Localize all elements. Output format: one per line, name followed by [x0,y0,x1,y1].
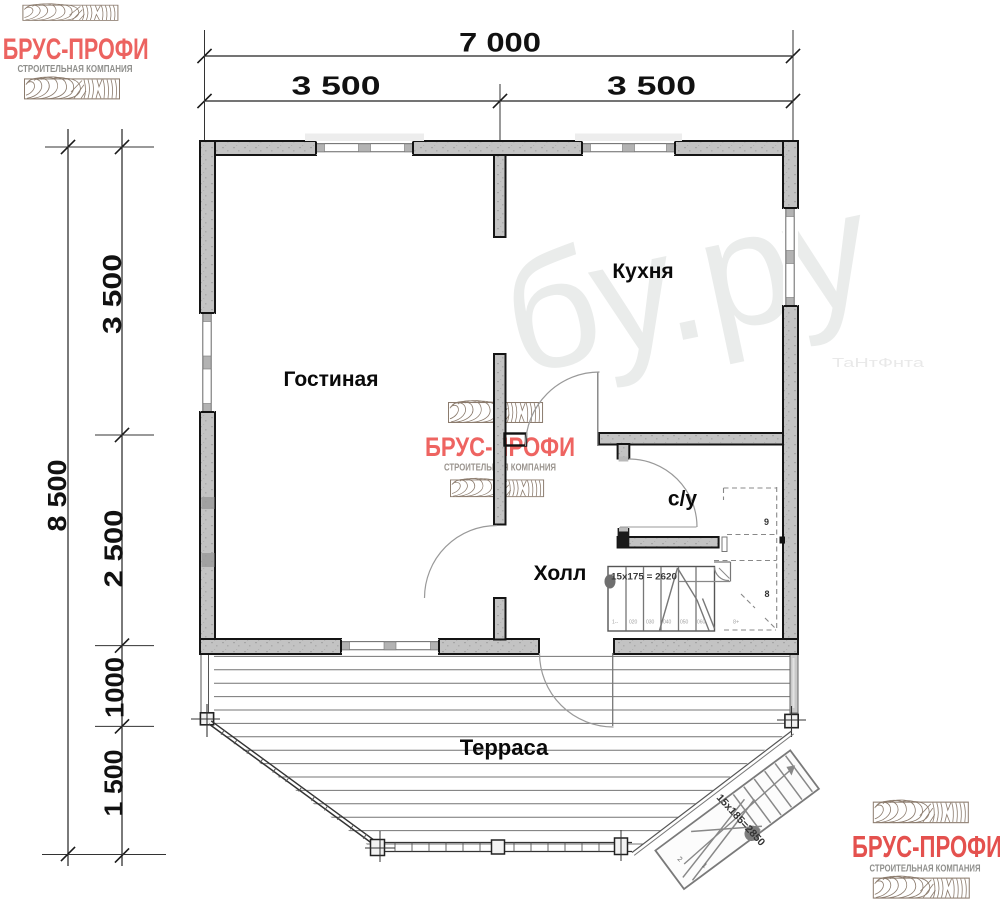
svg-text:3 500: 3 500 [97,254,127,334]
svg-text:020: 020 [629,620,638,626]
svg-text:1--: 1-- [612,620,618,626]
svg-text:050: 050 [680,620,689,626]
svg-text:3 500: 3 500 [607,71,696,101]
svg-text:15x175 = 2620: 15x175 = 2620 [611,572,677,583]
svg-text:040: 040 [663,620,672,626]
svg-text:Кухня: Кухня [612,260,673,283]
svg-text:Гостиная: Гостиная [284,368,379,391]
svg-text:с/у: с/у [668,488,698,511]
svg-text:9: 9 [764,517,769,527]
svg-text:Холл: Холл [534,562,587,585]
svg-text:8: 8 [764,589,769,599]
svg-text:030: 030 [646,620,655,626]
svg-text:7 000: 7 000 [459,28,541,58]
svg-text:060: 060 [697,620,706,626]
svg-text:8 500: 8 500 [42,460,72,532]
svg-text:БРУС-ПРОФИ: БРУС-ПРОФИ [852,829,1000,864]
svg-text:ТаНтФнта: ТаНтФнта [832,355,925,370]
svg-text:СТРОИТЕЛЬНАЯ КОМПАНИЯ: СТРОИТЕЛЬНАЯ КОМПАНИЯ [18,63,133,75]
svg-text:2 500: 2 500 [99,510,129,588]
svg-text:8+: 8+ [733,620,739,626]
svg-text:1000: 1000 [100,657,130,718]
svg-text:1 500: 1 500 [99,750,129,817]
svg-text:Терраса: Терраса [460,735,549,760]
svg-text:СТРОИТЕЛЬНАЯ КОМПАНИЯ: СТРОИТЕЛЬНАЯ КОМПАНИЯ [870,863,981,875]
svg-text:БРУС-ПРОФИ: БРУС-ПРОФИ [3,33,149,66]
svg-text:3 500: 3 500 [292,71,381,101]
